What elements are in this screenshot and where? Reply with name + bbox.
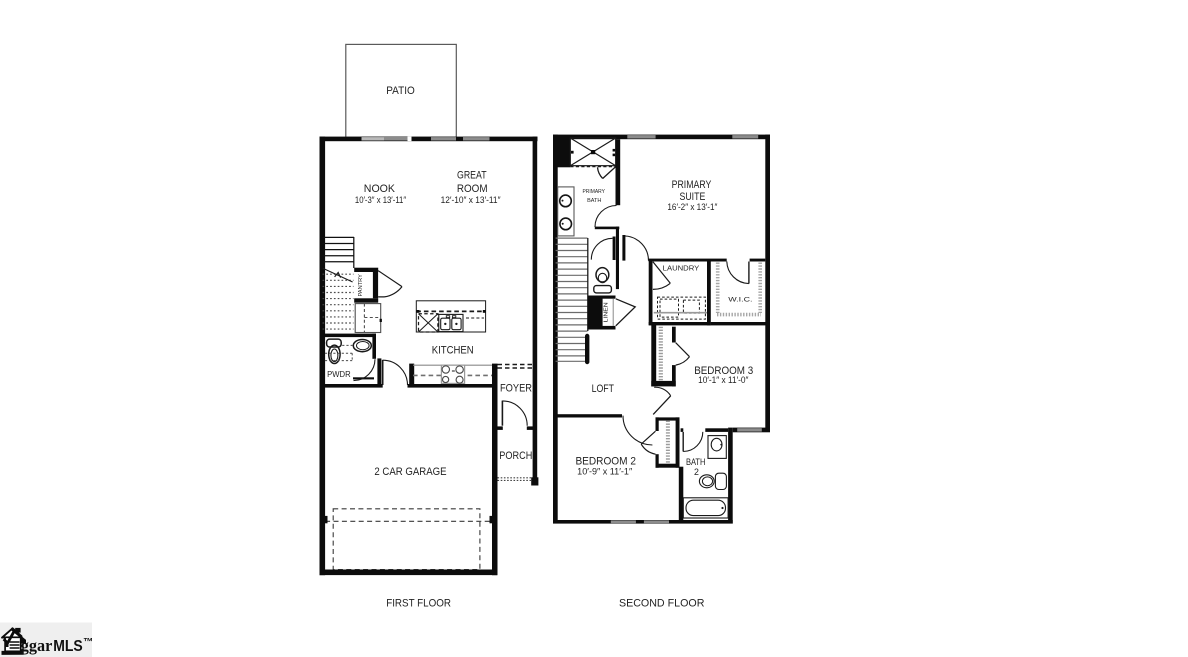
svg-text:MLS: MLS <box>53 638 82 655</box>
svg-text:LINEN: LINEN <box>604 302 610 322</box>
svg-text:LOFT: LOFT <box>592 383 615 395</box>
svg-text:12′-10″ x 13′-11″: 12′-10″ x 13′-11″ <box>441 195 501 205</box>
svg-text:PORCH: PORCH <box>499 450 532 462</box>
svg-text:BATH: BATH <box>587 198 601 204</box>
svg-text:W.I.C.: W.I.C. <box>728 297 753 304</box>
svg-text:NOOK: NOOK <box>364 183 396 195</box>
svg-text:ggar: ggar <box>21 636 53 655</box>
svg-text:FIRST FLOOR: FIRST FLOOR <box>386 597 451 609</box>
svg-text:10′-9″ x 11′-1″: 10′-9″ x 11′-1″ <box>577 467 632 477</box>
svg-text:PRIMARY: PRIMARY <box>583 189 606 195</box>
svg-text:™: ™ <box>83 637 93 648</box>
svg-text:SUITE: SUITE <box>680 191 706 203</box>
svg-text:BATH: BATH <box>686 457 706 467</box>
svg-text:PRIMARY: PRIMARY <box>672 179 712 191</box>
svg-text:PANTRY: PANTRY <box>358 274 364 297</box>
svg-text:SECOND FLOOR: SECOND FLOOR <box>619 597 705 609</box>
svg-text:10′-3″ x 13′-11″: 10′-3″ x 13′-11″ <box>355 195 406 205</box>
svg-text:ROOM: ROOM <box>457 183 488 195</box>
svg-text:KITCHEN: KITCHEN <box>432 344 474 356</box>
svg-text:2: 2 <box>694 467 699 477</box>
svg-text:PATIO: PATIO <box>386 85 415 97</box>
svg-text:GREAT: GREAT <box>457 170 487 182</box>
svg-text:FOYER: FOYER <box>500 383 532 395</box>
svg-text:16′-2″ x 13′-1″: 16′-2″ x 13′-1″ <box>667 202 717 212</box>
svg-text:LAUNDRY: LAUNDRY <box>663 264 700 273</box>
svg-text:PWDR: PWDR <box>327 370 351 379</box>
svg-text:2 CAR GARAGE: 2 CAR GARAGE <box>374 466 446 478</box>
svg-text:10′-1″ x 11′-0″: 10′-1″ x 11′-0″ <box>698 375 748 385</box>
